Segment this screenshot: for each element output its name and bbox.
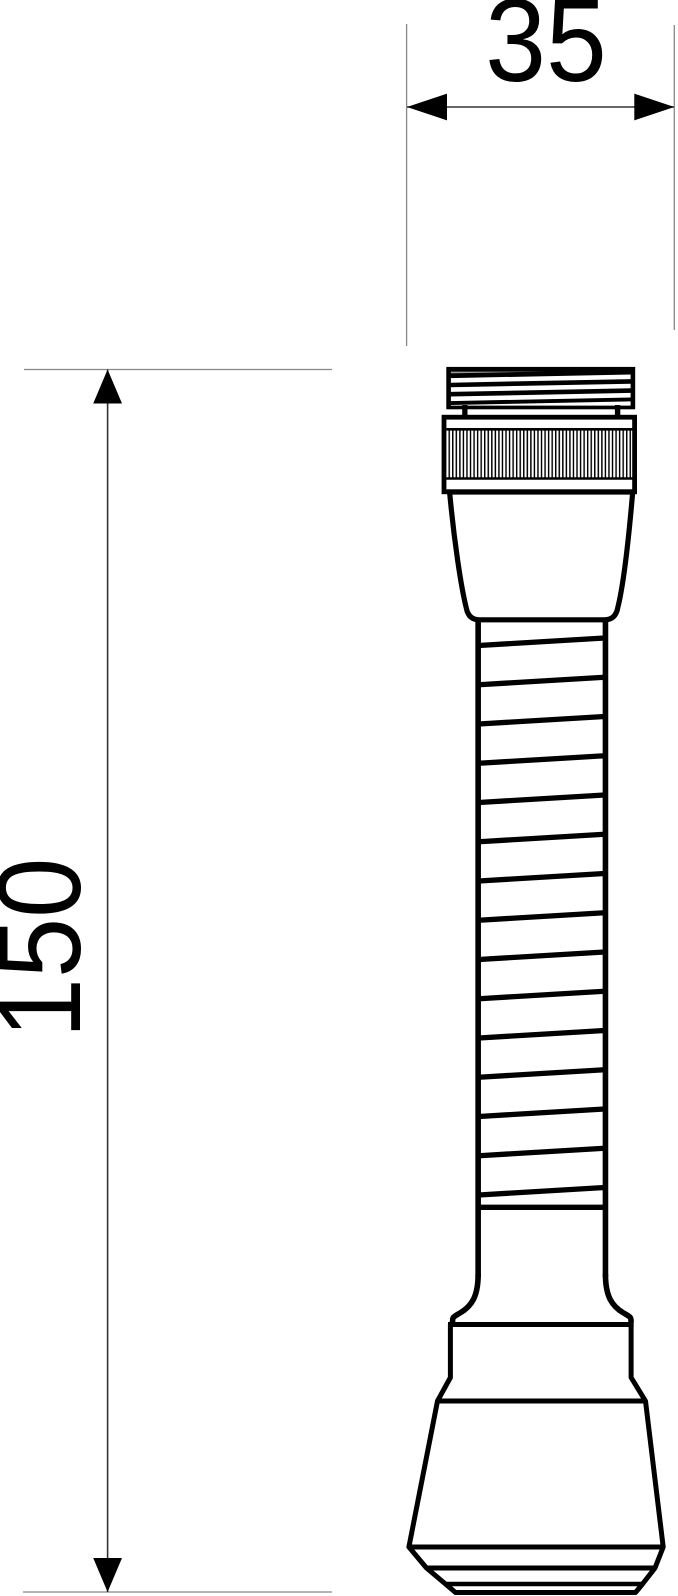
svg-text:35: 35 [485, 0, 607, 107]
svg-text:150: 150 [0, 858, 106, 1039]
